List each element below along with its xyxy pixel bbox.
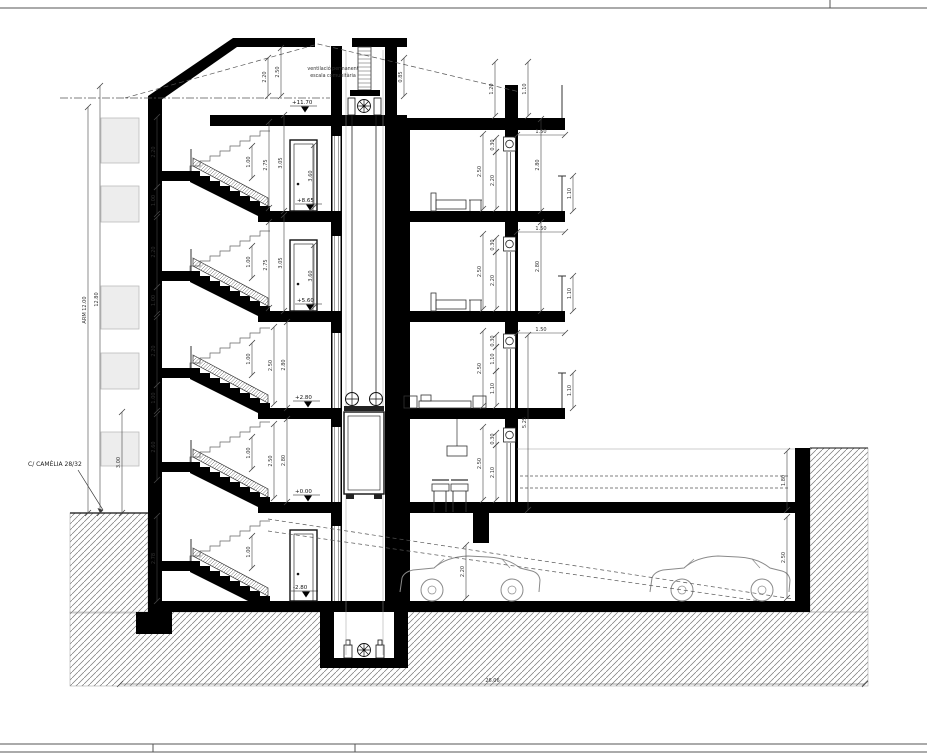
svg-text:26.06: 26.06 <box>485 678 499 684</box>
svg-text:0.85: 0.85 <box>398 71 404 82</box>
svg-text:1.10: 1.10 <box>567 385 573 396</box>
dim-vertical: 0.30 <box>490 332 499 350</box>
level-marker: +2.80 <box>293 395 320 408</box>
svg-text:1.00: 1.00 <box>246 447 252 458</box>
dim-vertical: 2.20 <box>490 249 499 312</box>
dim-vertical: ARM 12.00 <box>82 104 91 516</box>
svg-text:1.00: 1.00 <box>246 353 252 364</box>
svg-text:2.20: 2.20 <box>460 566 466 577</box>
svg-text:2.50: 2.50 <box>477 166 483 177</box>
svg-text:12.80: 12.80 <box>94 292 100 306</box>
svg-text:2.20: 2.20 <box>151 146 157 157</box>
dim-vertical: 5.25 <box>522 332 531 513</box>
svg-text:+2.80: +2.80 <box>295 395 312 401</box>
elevator-cab <box>344 393 384 500</box>
dim-vertical: 2.80 <box>535 219 544 314</box>
dim-vertical: 2.50 <box>275 45 284 99</box>
svg-text:1.00: 1.00 <box>246 256 252 267</box>
dim-vertical: 1.00 <box>246 243 255 281</box>
furniture <box>404 193 486 512</box>
garage-cars <box>400 556 790 601</box>
dim-vertical: 2.80 <box>281 416 290 505</box>
svg-text:2.80: 2.80 <box>281 359 287 370</box>
svg-text:1.50: 1.50 <box>535 129 546 135</box>
svg-text:+8.65: +8.65 <box>297 198 314 204</box>
dim-vertical: 1.00 <box>246 434 255 472</box>
dim-vertical: 2.20 <box>460 542 469 601</box>
svg-text:+11.70: +11.70 <box>292 100 313 106</box>
svg-text:1.00: 1.00 <box>151 392 157 403</box>
dim-vertical: 2.10 <box>490 442 499 503</box>
dining-ground-floor <box>432 419 468 512</box>
dim-vertical: 1.00 <box>246 143 255 181</box>
svg-text:2.75: 2.75 <box>263 159 269 170</box>
landing-doors <box>290 140 317 601</box>
svg-text:2.80: 2.80 <box>281 455 287 466</box>
dim-vertical: 1.10 <box>490 368 499 409</box>
dim-vertical: 3.05 <box>278 112 287 214</box>
svg-text:1.50: 1.50 <box>535 226 546 232</box>
svg-text:1.50: 1.50 <box>535 327 546 333</box>
dim-vertical: 0.30 <box>490 430 499 448</box>
svg-text:2.50: 2.50 <box>268 455 274 466</box>
svg-text:-2.80: -2.80 <box>293 585 308 591</box>
dim-vertical: 2.20 <box>490 149 499 212</box>
svg-text:5.25: 5.25 <box>522 417 528 428</box>
bed-first-floor <box>404 395 486 408</box>
svg-text:3.60: 3.60 <box>308 170 314 181</box>
svg-text:3.05: 3.05 <box>278 157 284 168</box>
svg-text:2.20: 2.20 <box>262 71 268 82</box>
svg-text:1.10: 1.10 <box>567 288 573 299</box>
dim-vertical: 2.50 <box>477 424 486 503</box>
svg-text:+0.00: +0.00 <box>295 489 312 495</box>
drawing-sheet: ventilació permanent escala comunitària … <box>0 0 927 755</box>
svg-text:2.50: 2.50 <box>275 66 281 77</box>
svg-text:2.50: 2.50 <box>268 360 274 371</box>
svg-text:2.20: 2.20 <box>490 175 496 186</box>
svg-text:2.80: 2.80 <box>535 159 541 170</box>
svg-text:1.10: 1.10 <box>522 83 528 94</box>
svg-text:1.00: 1.00 <box>151 295 157 306</box>
svg-text:2.50: 2.50 <box>477 363 483 374</box>
dim-vertical: 1.10 <box>522 59 531 119</box>
svg-text:2.50: 2.50 <box>477 266 483 277</box>
svg-text:2.20: 2.20 <box>151 246 157 257</box>
dim-vertical: 3.05 <box>278 212 287 314</box>
svg-text:1.00: 1.00 <box>151 195 157 206</box>
svg-text:2.60: 2.60 <box>151 441 157 452</box>
svg-text:0.30: 0.30 <box>490 139 496 150</box>
dim-vertical: 1.10 <box>567 173 576 214</box>
vent-note-line1: ventilació permanent <box>307 65 358 72</box>
level-marker: +11.70 <box>290 100 317 113</box>
svg-text:0.30: 0.30 <box>490 239 496 250</box>
level-marker: +0.00 <box>293 489 320 502</box>
dim-vertical: 1.10 <box>567 370 576 411</box>
svg-text:2.50: 2.50 <box>477 458 483 469</box>
dim-vertical: 1.00 <box>246 533 255 571</box>
svg-text:2.20: 2.20 <box>151 345 157 356</box>
street-leader-line <box>78 470 103 513</box>
dim-vertical: 2.50 <box>268 324 277 407</box>
svg-text:2.50: 2.50 <box>781 552 787 563</box>
dim-vertical: 2.50 <box>781 514 790 601</box>
svg-text:+5.60: +5.60 <box>297 298 314 304</box>
dim-vertical: 1.10 <box>567 273 576 314</box>
vent-note-line2: escala comunitària <box>310 72 356 79</box>
dim-vertical: 1.00 <box>246 340 255 378</box>
dim-vertical: 0.85 <box>398 55 407 99</box>
svg-text:0.30: 0.30 <box>490 335 496 346</box>
street-label: C/ CAMÈLIA 28/32 <box>28 460 82 468</box>
dim-horizontal: 1.50 <box>514 327 568 336</box>
dim-vertical: 0.30 <box>490 235 499 255</box>
svg-text:2.78: 2.78 <box>151 553 157 564</box>
svg-text:2.20: 2.20 <box>490 275 496 286</box>
svg-text:2.80: 2.80 <box>535 261 541 272</box>
structure-walls <box>136 38 810 634</box>
svg-text:1.10: 1.10 <box>490 353 496 364</box>
svg-text:3.00: 3.00 <box>116 457 122 468</box>
dim-vertical: 2.80 <box>281 319 290 411</box>
svg-text:ARM 12.00: ARM 12.00 <box>82 296 88 323</box>
svg-text:3.05: 3.05 <box>278 257 284 268</box>
svg-text:1.10: 1.10 <box>567 188 573 199</box>
svg-text:1.00: 1.00 <box>246 546 252 557</box>
dim-vertical: 1.20 <box>489 59 498 119</box>
svg-text:1.20: 1.20 <box>489 83 495 94</box>
dim-vertical: 2.20 <box>262 55 271 99</box>
svg-text:1.80: 1.80 <box>781 475 787 486</box>
dim-vertical: 2.50 <box>268 421 277 501</box>
dim-vertical: 2.50 <box>477 328 486 409</box>
building-section-drawing: ventilació permanent escala comunitària … <box>0 0 927 755</box>
elevator-landing-doors <box>333 136 341 601</box>
svg-text:2.10: 2.10 <box>490 467 496 478</box>
svg-text:2.75: 2.75 <box>263 259 269 270</box>
svg-text:0.30: 0.30 <box>490 433 496 444</box>
svg-text:3.60: 3.60 <box>308 270 314 281</box>
dim-vertical: 0.30 <box>490 135 499 155</box>
svg-text:1.00: 1.00 <box>246 156 252 167</box>
svg-text:1.10: 1.10 <box>490 383 496 394</box>
